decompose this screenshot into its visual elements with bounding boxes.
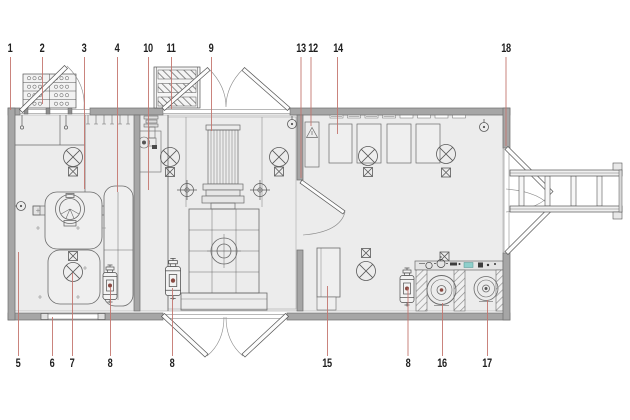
partition-right-upper <box>297 115 303 180</box>
bench-sofa <box>45 186 133 306</box>
callout-10: 10 <box>140 43 156 56</box>
callout-16: 16 <box>434 358 450 371</box>
callout-11: 11 <box>163 43 179 56</box>
callout-5: 5 <box>10 358 26 371</box>
callout-4: 4 <box>109 43 125 56</box>
callout-18: 18 <box>498 43 514 56</box>
callout-8b: 8 <box>164 358 180 371</box>
teal-fitting <box>464 263 473 268</box>
callout-8a: 8 <box>102 358 118 371</box>
double-door-bottom <box>162 314 289 358</box>
floor-plan-page: 1 2 3 4 10 11 9 13 12 14 18 5 6 7 8 8 15… <box>0 0 630 420</box>
callout-15: 15 <box>319 358 335 371</box>
callout-9: 9 <box>203 43 219 56</box>
callout-17: 17 <box>479 358 495 371</box>
removable-panel-6 <box>41 314 105 320</box>
callout-3: 3 <box>76 43 92 56</box>
callout-12: 12 <box>305 43 321 56</box>
partition-left <box>134 115 140 311</box>
callout-2: 2 <box>34 43 50 56</box>
partition-right-lower <box>297 250 303 311</box>
callout-14: 14 <box>330 43 346 56</box>
callout-8c: 8 <box>400 358 416 371</box>
equipment-column <box>202 125 244 209</box>
callout-7: 7 <box>64 358 80 371</box>
floor-plan-drawing <box>0 0 630 420</box>
callout-6: 6 <box>44 358 60 371</box>
exterior-ladder <box>510 163 622 219</box>
callout-1: 1 <box>2 43 18 56</box>
hatched-ramp <box>154 67 200 108</box>
